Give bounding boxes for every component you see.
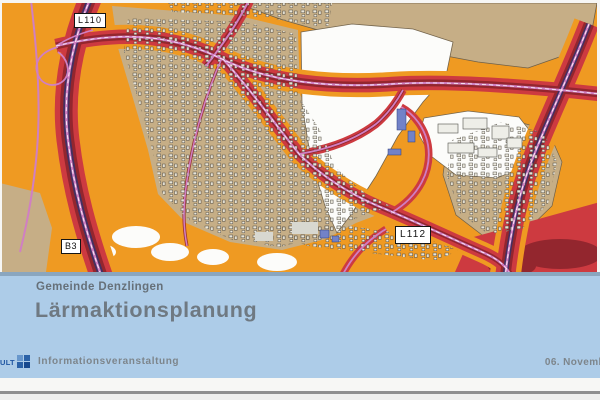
- logo-text: ULT: [0, 358, 15, 367]
- white-patch: [257, 253, 297, 271]
- footer-date-label: 06. Novemb: [545, 357, 600, 368]
- white-patch: [112, 226, 160, 248]
- noise-map-svg: [0, 0, 600, 272]
- bottom-edge: [0, 394, 600, 400]
- white-patch: [197, 249, 229, 265]
- road-label-b3: B3: [61, 239, 81, 254]
- slide-title: Lärmaktionsplanung: [35, 298, 257, 323]
- map-border-top: [0, 0, 600, 3]
- road-label-l110: L110: [74, 13, 106, 28]
- grid-squares-icon: [17, 355, 30, 368]
- road-label-l112: L112: [395, 226, 431, 244]
- map-border-left: [0, 0, 2, 272]
- white-patch: [151, 243, 189, 261]
- bottom-white-strip: [0, 378, 600, 391]
- footer-event-label: Informationsveranstaltung: [38, 356, 179, 367]
- presentation-slide: L110 B3 L112 Gemeinde Denzlingen Lärmakt…: [0, 0, 600, 400]
- noise-map: L110 B3 L112: [0, 0, 600, 272]
- slide-subtitle: Gemeinde Denzlingen: [36, 281, 164, 293]
